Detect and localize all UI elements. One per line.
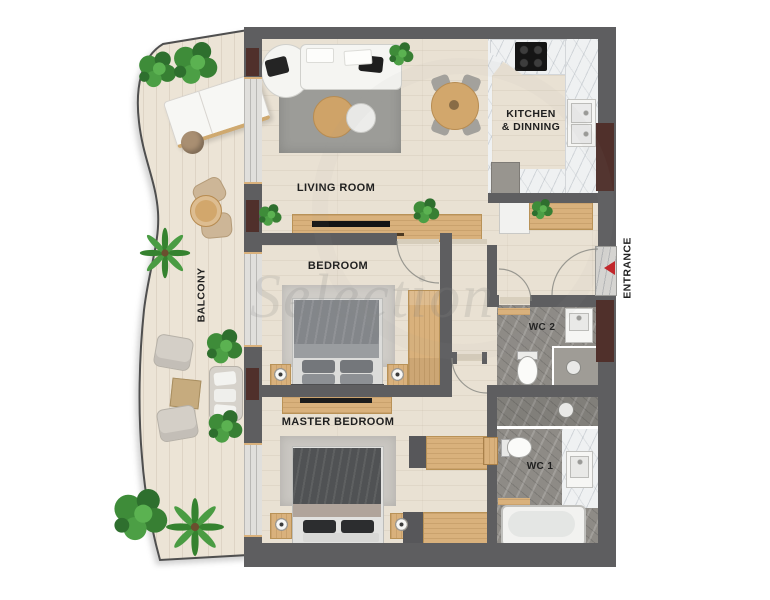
sliding-door — [244, 443, 262, 537]
label-kitchen-line1: KITCHEN — [502, 108, 560, 121]
wc1-toilet — [507, 437, 532, 458]
lamp — [391, 368, 404, 381]
label-living-room: LIVING ROOM — [297, 182, 375, 196]
bed-fold — [294, 344, 379, 358]
label-bedroom: BEDROOM — [308, 260, 368, 274]
wall-wc1-left — [487, 463, 497, 545]
wc1-sink-basin — [570, 456, 589, 478]
sofa-pillow-white — [306, 48, 334, 63]
shaft — [596, 300, 614, 362]
sliding-door — [244, 252, 262, 347]
entry-console — [529, 201, 593, 230]
wall-wc1-left — [487, 397, 497, 437]
threshold-wc2 — [500, 297, 530, 304]
wc1-shower-head — [558, 402, 574, 418]
closet-end-panel — [409, 436, 426, 468]
threshold-bedroom — [397, 239, 439, 244]
label-balcony: BALCONY — [195, 268, 208, 323]
threshold-hallway — [452, 239, 487, 244]
wardrobe — [408, 290, 440, 389]
dining-table-centerpiece — [449, 100, 459, 110]
wall-living-bedroom — [244, 233, 397, 245]
label-wc1: WC 1 — [527, 461, 554, 474]
wc1-shelf — [498, 498, 530, 505]
sink-basin — [571, 103, 592, 123]
shaft — [246, 48, 259, 76]
sofa-cushion — [214, 389, 236, 402]
floor-plan: LIVING ROOM KITCHEN & DINNING BEDROOM MA… — [0, 0, 770, 600]
master-tv — [300, 398, 372, 403]
lounge-seam — [199, 91, 214, 133]
sliding-door — [244, 77, 262, 184]
label-kitchen-line2: & DINNING — [502, 121, 560, 134]
wc2-sink-basin — [569, 313, 589, 331]
wall-wc2-top — [487, 295, 499, 307]
threshold-master — [457, 354, 482, 361]
wall-top — [245, 27, 616, 39]
sofa-cushion — [214, 404, 237, 417]
lamp — [395, 518, 408, 531]
door-jamb — [482, 352, 487, 364]
wall-kitchen-hall — [488, 193, 616, 203]
master-bed-duvet — [293, 448, 381, 506]
wall-bottom — [245, 543, 616, 567]
entry-cabinet — [499, 201, 530, 234]
bathtub-inner — [508, 511, 575, 537]
balcony-table — [190, 195, 222, 227]
bed-pillow — [340, 360, 373, 373]
sink-basin — [571, 124, 592, 144]
kitchen-appliance — [491, 162, 520, 197]
balcony-armchair — [155, 404, 199, 443]
label-wc2: WC 2 — [529, 322, 556, 335]
wc2-shower-glass — [552, 346, 554, 387]
shaft — [596, 123, 614, 191]
tv — [312, 221, 390, 227]
wall-bedroom-master — [244, 385, 440, 397]
wall-left-seg — [244, 533, 262, 567]
master-bed-pillow — [303, 520, 336, 533]
wc1-door-leaf — [483, 437, 498, 465]
wc2-toilet — [517, 356, 538, 385]
wall-hallway — [440, 233, 452, 397]
wc2-shower-glass-top — [552, 346, 598, 348]
label-kitchen: KITCHEN & DINNING — [502, 108, 560, 134]
balcony-sofa — [209, 366, 243, 421]
wc2-shower-head — [566, 360, 581, 375]
wall-wc-divider — [487, 385, 616, 397]
closet-wardrobe — [423, 512, 497, 545]
balcony-armchair — [152, 333, 194, 372]
lamp — [274, 368, 287, 381]
master-bed-pillow-white — [303, 533, 379, 542]
shaft — [246, 200, 259, 232]
shaft — [246, 368, 259, 400]
lamp — [275, 518, 288, 531]
master-bed-fold — [293, 504, 381, 517]
wc1-shower-floor — [497, 397, 598, 426]
label-master-bedroom: MASTER BEDROOM — [282, 416, 395, 430]
cooktop — [515, 42, 547, 71]
wc1-shower-glass — [497, 426, 598, 429]
wc2-shelf — [498, 308, 530, 315]
entrance-arrow-icon — [604, 261, 615, 275]
label-entrance: ENTRANCE — [621, 237, 634, 299]
bed-duvet — [294, 300, 379, 346]
coffee-table-white — [346, 103, 376, 133]
bed-pillow — [302, 360, 335, 373]
sofa-cushion — [213, 371, 236, 386]
sofa-pillow-white — [344, 49, 373, 66]
master-bed-pillow — [341, 520, 374, 533]
pouf — [181, 131, 204, 154]
